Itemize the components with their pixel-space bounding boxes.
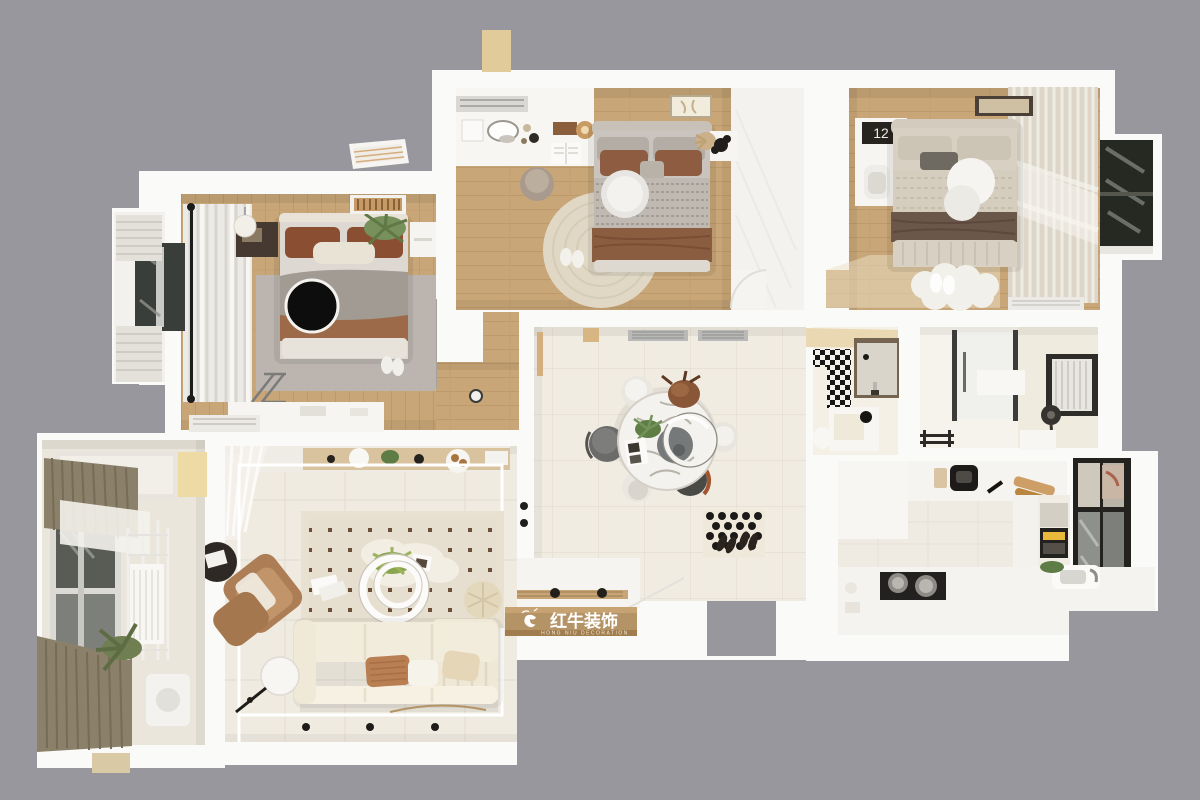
- svg-text:12: 12: [873, 125, 889, 141]
- svg-text:红牛装饰: 红牛装饰: [550, 611, 618, 631]
- svg-text:HONG NIU DECORATION: HONG NIU DECORATION: [541, 631, 629, 637]
